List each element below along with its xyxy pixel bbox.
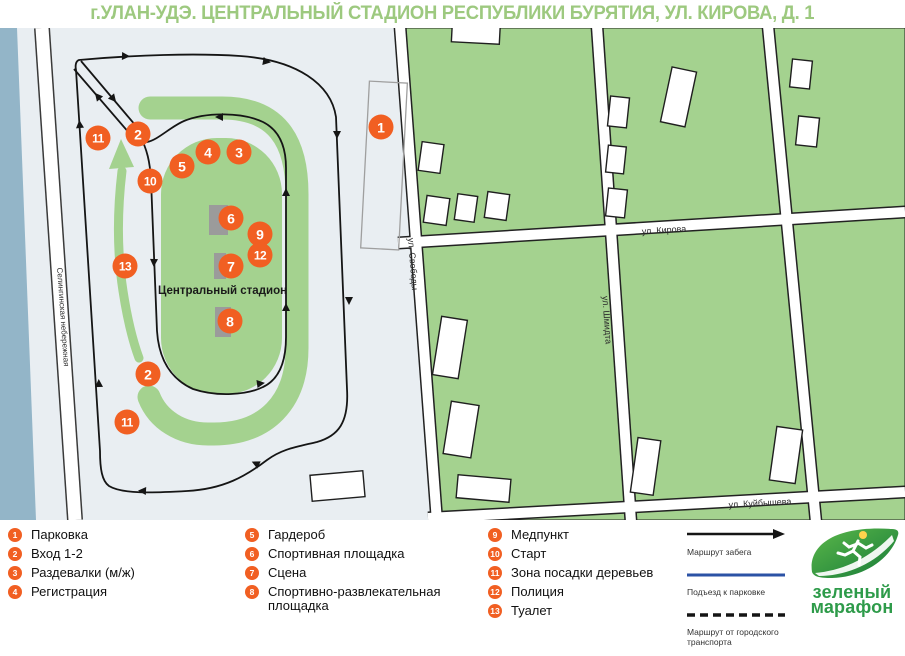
route-legend-race: Маршрут забега [687,526,789,557]
race-route-sample-line [687,529,785,539]
map-marker-8: 8 [218,309,243,334]
legend-column-3: 9Медпункт10Старт11Зона посадки деревьев1… [488,528,653,623]
legend-item-label: Гардероб [268,528,325,542]
logo-text-line2: марафон [802,600,902,615]
route-legend-transit-label: Маршрут от городского транспорта [687,627,789,647]
legend-item-number: 9 [488,528,502,542]
legend-item-12: 12Полиция [488,585,653,599]
legend-item-4: 4Регистрация [8,585,135,599]
page-title: г.УЛАН-УДЭ. ЦЕНТРАЛЬНЫЙ СТАДИОН РЕСПУБЛИ… [90,3,814,25]
map-marker-13: 13 [113,254,138,279]
legend-item-11: 11Зона посадки деревьев [488,566,653,580]
legend-item-2: 2Вход 1-2 [8,547,135,561]
map-marker-7: 7 [219,254,244,279]
legend: 1Парковка2Вход 1-23Раздевалки (м/ж)4Реги… [0,520,905,630]
legend-item-1: 1Парковка [8,528,135,542]
map-marker-6: 6 [219,206,244,231]
parking-route-sample-line [687,571,785,579]
legend-item-number: 5 [245,528,259,542]
legend-item-number: 2 [8,547,22,561]
legend-item-number: 6 [245,547,259,561]
map-marker-4: 4 [196,140,221,165]
legend-item-13: 13Туалет [488,604,653,618]
legend-item-number: 4 [8,585,22,599]
legend-item-number: 8 [245,585,259,599]
legend-item-number: 11 [488,566,502,580]
map-marker-1: 1 [369,115,394,140]
legend-item-number: 12 [488,585,502,599]
map-marker-2: 2 [136,362,161,387]
legend-item-number: 13 [488,604,502,618]
route-legend-transit: Маршрут от городского транспорта [687,606,789,647]
legend-item-number: 10 [488,547,502,561]
event-map-poster: г.УЛАН-УДЭ. ЦЕНТРАЛЬНЫЙ СТАДИОН РЕСПУБЛИ… [0,0,905,630]
legend-item-6: 6Спортивная площадка [245,547,453,561]
legend-item-10: 10Старт [488,547,653,561]
map-marker-11: 11 [115,410,140,435]
legend-item-label: Раздевалки (м/ж) [31,566,135,580]
legend-item-label: Полиция [511,585,564,599]
legend-item-label: Старт [511,547,546,561]
legend-item-label: Спортивно-развлекательная площадка [268,585,453,613]
legend-item-7: 7Сцена [245,566,453,580]
route-legend: Маршрут забега Подъезд к парковке Маршру… [687,526,789,656]
legend-item-9: 9Медпункт [488,528,653,542]
title-band: г.УЛАН-УДЭ. ЦЕНТРАЛЬНЫЙ СТАДИОН РЕСПУБЛИ… [0,0,905,28]
legend-item-label: Вход 1-2 [31,547,83,561]
map-marker-3: 3 [227,140,252,165]
map-marker-5: 5 [170,154,195,179]
map-marker-2: 2 [126,122,151,147]
legend-item-3: 3Раздевалки (м/ж) [8,566,135,580]
legend-item-label: Сцена [268,566,306,580]
legend-column-1: 1Парковка2Вход 1-23Раздевалки (м/ж)4Реги… [8,528,135,604]
legend-item-label: Парковка [31,528,88,542]
legend-item-label: Зона посадки деревьев [511,566,653,580]
legend-item-label: Спортивная площадка [268,547,405,561]
route-legend-race-label: Маршрут забега [687,547,789,557]
map-marker-10: 10 [138,169,163,194]
route-legend-parking: Подъезд к парковке [687,566,789,597]
map-marker-12: 12 [248,243,273,268]
legend-item-label: Регистрация [31,585,107,599]
legend-item-8: 8Спортивно-развлекательная площадка [245,585,453,613]
transit-route-sample-line [687,611,785,619]
legend-item-number: 7 [245,566,259,580]
legend-item-label: Туалет [511,604,552,618]
stadium-name-label: Центральный стадион [150,285,295,297]
legend-item-number: 1 [8,528,22,542]
map-marker-11: 11 [86,126,111,151]
legend-item-number: 3 [8,566,22,580]
leaf-runner-icon [802,520,902,580]
route-legend-parking-label: Подъезд к парковке [687,587,789,597]
green-marathon-logo: зеленый марафон [802,520,902,615]
legend-item-label: Медпункт [511,528,569,542]
legend-item-5: 5Гардероб [245,528,453,542]
legend-column-2: 5Гардероб6Спортивная площадка7Сцена8Спор… [245,528,453,618]
